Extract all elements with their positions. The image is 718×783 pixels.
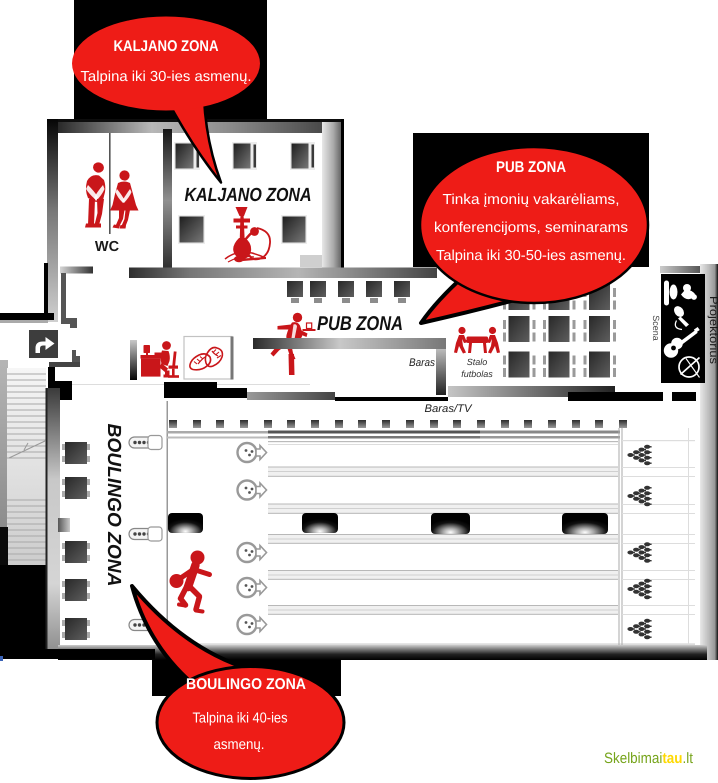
svg-text:Stalo: Stalo bbox=[467, 357, 488, 367]
svg-text:Scena: Scena bbox=[651, 315, 661, 341]
svg-text:futbolas: futbolas bbox=[461, 369, 493, 379]
svg-text:WC: WC bbox=[95, 239, 120, 255]
svg-text:Skelbimaitau.lt: Skelbimaitau.lt bbox=[604, 750, 694, 767]
svg-text:Baras: Baras bbox=[409, 357, 435, 369]
svg-text:KALJANO ZONA: KALJANO ZONA bbox=[185, 185, 312, 206]
svg-text:BOULINGO ZONA: BOULINGO ZONA bbox=[103, 424, 124, 587]
svg-text:Talpina iki 30-ies asmenų.: Talpina iki 30-ies asmenų. bbox=[81, 69, 252, 85]
svg-text:Projektorius: Projektorius bbox=[707, 296, 718, 364]
svg-text:KALJANO ZONA: KALJANO ZONA bbox=[114, 38, 219, 55]
svg-text:PUB ZONA: PUB ZONA bbox=[317, 313, 403, 335]
svg-text:konferencijoms, seminarams: konferencijoms, seminarams bbox=[434, 220, 628, 236]
svg-text:PUB ZONA: PUB ZONA bbox=[496, 159, 566, 176]
svg-text:Baras/TV: Baras/TV bbox=[425, 403, 474, 415]
svg-text:BOULINGO ZONA: BOULINGO ZONA bbox=[186, 676, 306, 693]
svg-text:asmenų.: asmenų. bbox=[214, 737, 265, 753]
svg-text:Talpina iki 30-50-ies asmenų.: Talpina iki 30-50-ies asmenų. bbox=[436, 248, 626, 264]
svg-text:Tinka įmonių vakarėliams,: Tinka įmonių vakarėliams, bbox=[443, 192, 620, 208]
svg-text:Talpina iki 40-ies: Talpina iki 40-ies bbox=[193, 711, 288, 727]
